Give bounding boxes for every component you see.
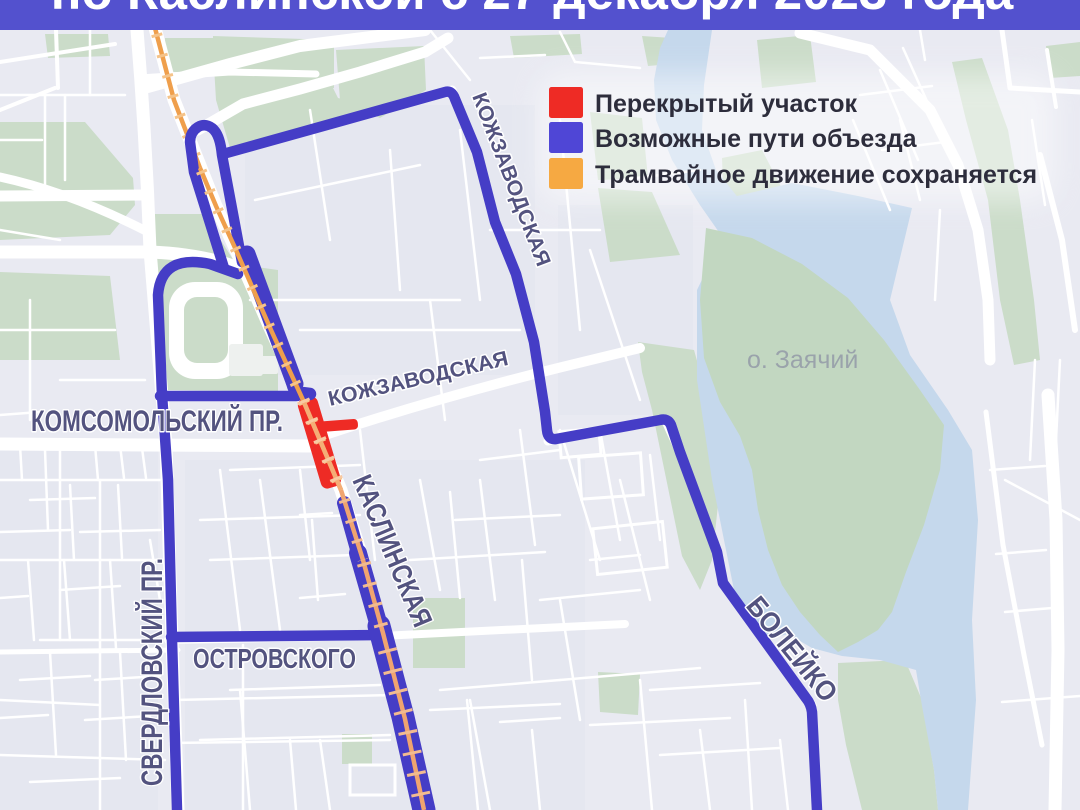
svg-text:ОСТРОВСКОГО: ОСТРОВСКОГО [193,643,356,674]
svg-text:Трамвайное движение сохраняетс: Трамвайное движение сохраняется [595,161,1037,189]
svg-text:Возможные пути объезда: Возможные пути объезда [595,125,918,153]
svg-text:Перекрытый участок: Перекрытый участок [595,90,857,118]
svg-text:по Каслинской с 27 декабря 202: по Каслинской с 27 декабря 2023 года [51,0,1014,20]
svg-text:СВЕРДЛОВСКИЙ ПР.: СВЕРДЛОВСКИЙ ПР. [135,558,169,786]
svg-text:КОМСОМОЛЬСКИЙ ПР.: КОМСОМОЛЬСКИЙ ПР. [31,404,283,438]
svg-text:о. Заячий: о. Заячий [747,346,858,374]
